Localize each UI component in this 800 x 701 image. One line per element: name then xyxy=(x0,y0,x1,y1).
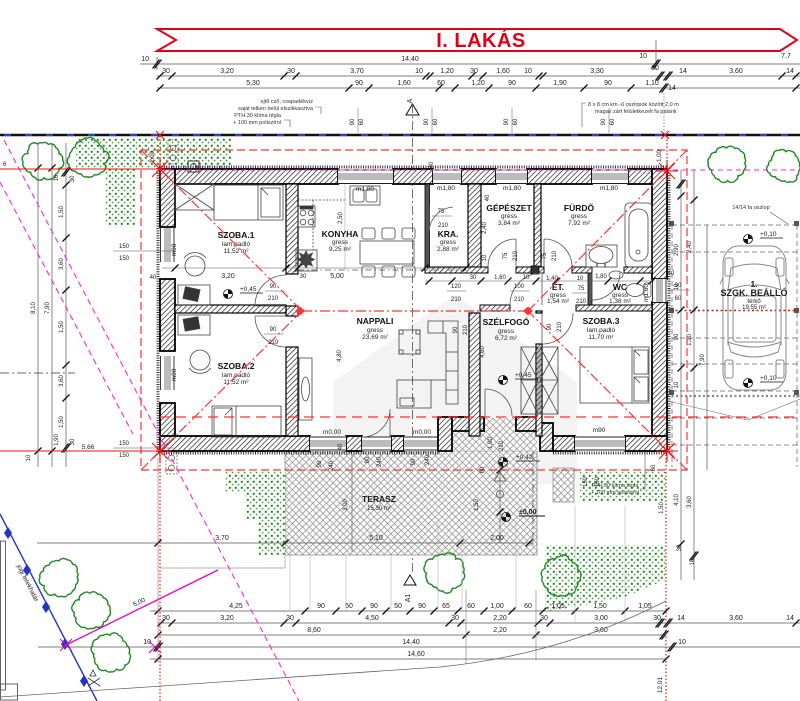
svg-text:8,10: 8,10 xyxy=(31,302,37,314)
svg-text:+0,10: +0,10 xyxy=(760,231,777,238)
svg-text:50: 50 xyxy=(345,603,353,610)
svg-text:SZÉLFOGÓ: SZÉLFOGÓ xyxy=(483,316,530,327)
svg-text:40: 40 xyxy=(485,194,491,201)
svg-text:210: 210 xyxy=(552,250,558,261)
svg-text:40: 40 xyxy=(429,161,435,168)
svg-text:2,90: 2,90 xyxy=(674,244,680,256)
svg-text:90: 90 xyxy=(370,603,378,610)
svg-text:90: 90 xyxy=(547,323,553,330)
svg-text:14,60: 14,60 xyxy=(407,651,425,658)
svg-text:2,00: 2,00 xyxy=(490,535,504,542)
svg-text:NAPPALI: NAPPALI xyxy=(357,316,394,326)
svg-text:210: 210 xyxy=(463,324,469,335)
svg-text:90: 90 xyxy=(418,603,426,610)
svg-text:75: 75 xyxy=(578,286,585,292)
svg-text:1,50: 1,50 xyxy=(59,416,65,428)
svg-text:+0,45: +0,45 xyxy=(240,286,257,293)
svg-text:+ 100 mm polisztrol: + 100 mm polisztrol xyxy=(591,490,639,496)
svg-text:2,20: 2,20 xyxy=(493,627,507,634)
svg-text:60: 60 xyxy=(513,118,519,125)
svg-text:150: 150 xyxy=(119,256,130,262)
svg-text:9,25 m²: 9,25 m² xyxy=(329,246,352,253)
svg-text:150: 150 xyxy=(119,453,130,459)
svg-text:7,92 m²: 7,92 m² xyxy=(568,220,591,227)
svg-text:3,00: 3,00 xyxy=(343,499,349,511)
svg-text:90: 90 xyxy=(355,80,363,87)
svg-text:14: 14 xyxy=(786,68,794,75)
svg-text:30: 30 xyxy=(651,65,659,72)
svg-text:3,20: 3,20 xyxy=(220,68,234,75)
svg-text:1,20: 1,20 xyxy=(440,68,454,75)
svg-text:210: 210 xyxy=(438,223,449,229)
svg-text:60: 60 xyxy=(467,603,475,610)
svg-text:1,60: 1,60 xyxy=(496,68,510,75)
svg-text:90: 90 xyxy=(317,460,323,467)
svg-text:GÉPÉSZET: GÉPÉSZET xyxy=(486,203,532,213)
svg-text:11,70 m²: 11,70 m² xyxy=(588,334,614,341)
svg-text:1,50: 1,50 xyxy=(474,499,480,511)
svg-text:210: 210 xyxy=(514,297,525,303)
svg-text:90: 90 xyxy=(270,327,277,333)
svg-text:10: 10 xyxy=(524,68,532,75)
svg-text:SZGK. BEÁLLÓ: SZGK. BEÁLLÓ xyxy=(721,287,788,298)
svg-text:90: 90 xyxy=(317,603,325,610)
svg-text:gress: gress xyxy=(501,213,518,220)
svg-text:75: 75 xyxy=(503,252,509,259)
svg-text:30: 30 xyxy=(70,175,76,182)
svg-text:4,25: 4,25 xyxy=(229,603,243,610)
svg-text:1,60: 1,60 xyxy=(494,275,506,281)
svg-text:10: 10 xyxy=(690,558,696,565)
svg-text:30: 30 xyxy=(162,615,170,622)
svg-text:1,50: 1,50 xyxy=(59,206,65,218)
svg-text:60: 60 xyxy=(675,296,682,302)
svg-text:12,01: 12,01 xyxy=(657,676,664,693)
svg-text:3,70: 3,70 xyxy=(215,535,229,542)
svg-text:90: 90 xyxy=(601,118,607,125)
svg-text:150: 150 xyxy=(583,476,589,487)
svg-text:1,10: 1,10 xyxy=(645,80,659,87)
svg-text:60: 60 xyxy=(610,118,616,125)
svg-text:gress: gress xyxy=(332,239,349,246)
svg-text:30: 30 xyxy=(162,68,170,75)
svg-text:30: 30 xyxy=(287,68,295,75)
svg-text:KONYHA: KONYHA xyxy=(322,229,359,239)
svg-text:23,69 m²: 23,69 m² xyxy=(362,334,388,341)
svg-text:±0,00: ±0,00 xyxy=(519,509,537,516)
svg-text:m90: m90 xyxy=(171,243,178,256)
svg-text:90: 90 xyxy=(453,326,459,333)
svg-text:75: 75 xyxy=(438,209,445,215)
svg-text:SZOBA.3: SZOBA.3 xyxy=(583,316,620,326)
svg-text:1,00: 1,00 xyxy=(490,603,504,610)
svg-text:15,30 m²: 15,30 m² xyxy=(367,506,391,512)
svg-text:1,50: 1,50 xyxy=(593,603,607,610)
svg-text:90: 90 xyxy=(675,283,682,289)
svg-text:90: 90 xyxy=(674,333,680,340)
svg-text:4,60: 4,60 xyxy=(480,346,486,358)
svg-text:3,84 m²: 3,84 m² xyxy=(498,220,521,227)
svg-text:10: 10 xyxy=(678,639,686,646)
svg-text:40: 40 xyxy=(150,275,157,281)
svg-text:m1,80: m1,80 xyxy=(600,185,618,192)
svg-text:10: 10 xyxy=(415,68,423,75)
svg-text:4,50: 4,50 xyxy=(365,615,379,622)
svg-text:75: 75 xyxy=(542,252,548,259)
svg-text:30: 30 xyxy=(451,615,459,622)
svg-text:5,30: 5,30 xyxy=(246,80,260,87)
svg-text:3,60: 3,60 xyxy=(729,615,743,622)
svg-text:8 x 8 cm km.-ű oszlopok között: 8 x 8 cm km.-ű oszlopok között 2,0 m xyxy=(588,102,679,108)
svg-text:150: 150 xyxy=(119,244,130,250)
svg-text:1,54 m²: 1,54 m² xyxy=(547,298,570,305)
svg-text:I. LAKÁS: I. LAKÁS xyxy=(436,29,526,52)
svg-text:+ 100 mm polisztrol: + 100 mm polisztrol xyxy=(233,120,281,126)
svg-text:FÜRDŐ: FÜRDŐ xyxy=(564,202,595,213)
svg-text:65: 65 xyxy=(442,603,450,610)
svg-text:60: 60 xyxy=(437,80,445,87)
svg-text:60: 60 xyxy=(359,118,365,125)
svg-text:90: 90 xyxy=(411,458,417,465)
svg-text:10: 10 xyxy=(141,56,149,63)
svg-text:240: 240 xyxy=(425,454,431,465)
svg-text:2,50: 2,50 xyxy=(338,212,344,224)
svg-text:30: 30 xyxy=(653,615,661,622)
svg-text:10: 10 xyxy=(143,639,151,646)
svg-text:210: 210 xyxy=(513,250,519,261)
svg-text:3,70: 3,70 xyxy=(350,68,364,75)
svg-text:14,40: 14,40 xyxy=(402,639,420,646)
svg-text:PTH.30 klíma tégla: PTH.30 klíma tégla xyxy=(234,113,282,119)
svg-text:7,90: 7,90 xyxy=(45,302,51,314)
svg-text:+0,42: +0,42 xyxy=(516,454,533,461)
svg-text:30: 30 xyxy=(540,615,548,622)
svg-text:150: 150 xyxy=(119,441,130,447)
svg-text:10: 10 xyxy=(674,381,680,388)
svg-text:90: 90 xyxy=(504,118,510,125)
svg-text:90: 90 xyxy=(365,456,371,463)
svg-text:1,00: 1,00 xyxy=(488,437,494,449)
svg-text:1,60: 1,60 xyxy=(397,80,411,87)
svg-text:magas zárt felületkezelt fa pa: magas zárt felületkezelt fa palánk xyxy=(595,109,677,115)
svg-text:120: 120 xyxy=(451,284,462,290)
svg-text:+0,45: +0,45 xyxy=(515,372,532,379)
svg-text:30: 30 xyxy=(286,615,294,622)
svg-text:1,90: 1,90 xyxy=(54,434,60,446)
svg-text:210: 210 xyxy=(576,299,587,305)
svg-text:19,55 m²: 19,55 m² xyxy=(742,305,766,311)
svg-text:6,72 m²: 6,72 m² xyxy=(495,335,518,342)
svg-text:30: 30 xyxy=(470,68,478,75)
svg-text:3,60: 3,60 xyxy=(59,375,65,387)
svg-text:1,90: 1,90 xyxy=(553,80,567,87)
svg-text:10: 10 xyxy=(54,174,60,181)
svg-text:14: 14 xyxy=(679,68,687,75)
svg-text:10: 10 xyxy=(482,254,488,261)
svg-text:5,66: 5,66 xyxy=(82,444,95,451)
svg-text:2,88 m²: 2,88 m² xyxy=(437,246,460,253)
svg-text:2,20: 2,20 xyxy=(493,615,507,622)
svg-text:1,10: 1,10 xyxy=(687,334,693,346)
svg-text:30: 30 xyxy=(470,275,477,281)
svg-text:1,80: 1,80 xyxy=(595,274,607,280)
svg-text:240: 240 xyxy=(377,456,383,467)
svg-text:30: 30 xyxy=(677,544,683,551)
svg-text:90: 90 xyxy=(350,118,356,125)
svg-text:10: 10 xyxy=(523,275,530,281)
svg-text:5,10: 5,10 xyxy=(369,535,383,542)
svg-text:gress: gress xyxy=(367,327,384,334)
svg-text:m0,00: m0,00 xyxy=(323,429,341,436)
svg-text:KRA.: KRA. xyxy=(438,229,459,239)
svg-text:m1,80: m1,80 xyxy=(437,185,455,192)
svg-text:30: 30 xyxy=(300,274,307,280)
svg-text:150: 150 xyxy=(595,476,601,487)
svg-text:TERASZ: TERASZ xyxy=(362,494,396,504)
svg-text:10: 10 xyxy=(639,53,647,60)
svg-text:3,00: 3,00 xyxy=(594,615,608,622)
svg-text:m1,80: m1,80 xyxy=(356,186,374,193)
svg-text:m90: m90 xyxy=(171,368,178,381)
svg-text:7,90: 7,90 xyxy=(700,354,706,366)
svg-text:2,40: 2,40 xyxy=(482,222,488,234)
svg-text:210: 210 xyxy=(268,296,279,302)
svg-text:1,50: 1,50 xyxy=(659,502,665,514)
svg-text:210: 210 xyxy=(557,321,563,332)
svg-text:10: 10 xyxy=(26,454,32,461)
svg-text:40: 40 xyxy=(338,443,344,450)
svg-text:1,00: 1,00 xyxy=(657,150,663,162)
svg-text:14: 14 xyxy=(668,85,676,92)
svg-text:lam.padló: lam.padló xyxy=(587,327,616,334)
svg-text:1,38 m²: 1,38 m² xyxy=(609,298,632,305)
svg-text:m1,60: m1,60 xyxy=(643,284,650,302)
svg-text:14/14 fa oszlop: 14/14 fa oszlop xyxy=(732,205,769,211)
svg-text:14: 14 xyxy=(786,615,794,622)
svg-text:7,7: 7,7 xyxy=(781,53,791,60)
svg-text:8,60: 8,60 xyxy=(307,627,321,634)
svg-text:4,80: 4,80 xyxy=(337,350,343,362)
svg-text:60: 60 xyxy=(433,118,439,125)
svg-text:14,40: 14,40 xyxy=(401,56,419,63)
svg-text:A1: A1 xyxy=(405,594,412,603)
svg-text:1,50: 1,50 xyxy=(59,321,65,333)
svg-text:1,05: 1,05 xyxy=(551,603,565,610)
svg-text:14: 14 xyxy=(677,615,685,622)
svg-text:90: 90 xyxy=(604,80,612,87)
svg-text:+0,10: +0,10 xyxy=(760,375,777,382)
svg-text:90: 90 xyxy=(508,80,516,87)
svg-text:3,60: 3,60 xyxy=(59,258,65,270)
svg-text:m1,80: m1,80 xyxy=(503,185,521,192)
svg-text:m90: m90 xyxy=(593,427,606,434)
svg-text:90: 90 xyxy=(270,284,277,290)
svg-text:3,20: 3,20 xyxy=(221,273,235,280)
svg-text:3,30: 3,30 xyxy=(590,68,604,75)
svg-text:gress: gress xyxy=(498,328,515,335)
svg-text:60: 60 xyxy=(524,603,532,610)
svg-text:50: 50 xyxy=(394,603,402,610)
svg-text:4,10: 4,10 xyxy=(674,494,680,506)
svg-text:210: 210 xyxy=(451,297,462,303)
svg-text:ejtő cső, csapadékvíz: ejtő cső, csapadékvíz xyxy=(260,99,313,105)
svg-text:90: 90 xyxy=(424,118,430,125)
svg-text:A: A xyxy=(407,98,414,103)
svg-text:40: 40 xyxy=(668,271,675,277)
svg-text:100: 100 xyxy=(514,284,525,290)
svg-text:30: 30 xyxy=(70,438,76,445)
svg-text:210: 210 xyxy=(499,440,505,451)
svg-text:gress: gress xyxy=(571,213,588,220)
svg-text:5,00: 5,00 xyxy=(330,273,344,280)
svg-text:3,60: 3,60 xyxy=(687,496,693,508)
svg-text:m0,00: m0,00 xyxy=(413,429,431,436)
svg-text:1,00: 1,00 xyxy=(150,151,156,163)
svg-text:gress: gress xyxy=(440,239,457,246)
svg-text:3,20: 3,20 xyxy=(220,615,234,622)
svg-text:2,40: 2,40 xyxy=(687,241,693,253)
svg-text:3,60: 3,60 xyxy=(729,68,743,75)
svg-text:saját telken belül elszikkaszt: saját telken belül elszikkasztva xyxy=(238,106,314,112)
svg-text:WC: WC xyxy=(613,282,627,292)
svg-text:1,20: 1,20 xyxy=(471,80,485,87)
